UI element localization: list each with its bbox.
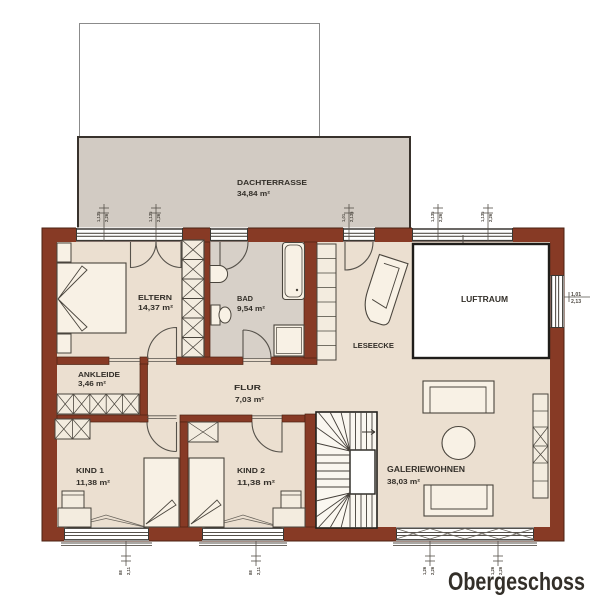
svg-text:BAD: BAD (237, 294, 254, 303)
svg-text:1,135: 1,135 (430, 211, 435, 222)
svg-text:2,11: 2,11 (126, 566, 131, 575)
svg-text:9,54 m²: 9,54 m² (237, 304, 266, 313)
svg-text:2,135: 2,135 (349, 211, 354, 222)
svg-text:2,26: 2,26 (438, 213, 443, 222)
svg-text:3,46 m²: 3,46 m² (78, 379, 107, 388)
svg-text:2,26: 2,26 (488, 213, 493, 222)
svg-text:14,37 m²: 14,37 m² (138, 303, 174, 312)
svg-text:38,03 m²: 38,03 m² (387, 477, 421, 486)
svg-text:1,135: 1,135 (148, 211, 153, 222)
svg-text:LESEECKE: LESEECKE (353, 341, 394, 350)
svg-text:88: 88 (118, 570, 123, 575)
svg-text:Obergeschoss: Obergeschoss (448, 568, 585, 596)
svg-text:1,135: 1,135 (96, 211, 101, 222)
svg-text:34,84 m²: 34,84 m² (237, 189, 271, 198)
svg-text:LUFTRAUM: LUFTRAUM (461, 295, 508, 304)
svg-text:1,01: 1,01 (341, 213, 346, 222)
svg-text:2,11: 2,11 (256, 566, 261, 575)
svg-text:2,13: 2,13 (571, 299, 581, 305)
svg-text:1,01: 1,01 (571, 292, 581, 298)
svg-text:2,26: 2,26 (156, 213, 161, 222)
svg-text:88: 88 (248, 570, 253, 575)
svg-text:FLUR: FLUR (234, 383, 262, 392)
svg-text:1,135: 1,135 (480, 211, 485, 222)
svg-text:11,38 m²: 11,38 m² (76, 478, 111, 487)
svg-text:2,26: 2,26 (104, 213, 109, 222)
svg-text:ELTERN: ELTERN (138, 293, 172, 302)
svg-text:KIND 2: KIND 2 (237, 466, 265, 475)
svg-text:DACHTERRASSE: DACHTERRASSE (237, 178, 307, 187)
svg-text:KIND 1: KIND 1 (76, 466, 104, 475)
svg-text:7,03 m²: 7,03 m² (235, 395, 265, 404)
svg-text:1,26: 1,26 (422, 566, 427, 575)
svg-text:11,38 m²: 11,38 m² (237, 478, 276, 487)
svg-text:GALERIEWOHNEN: GALERIEWOHNEN (387, 465, 465, 474)
svg-text:ANKLEIDE: ANKLEIDE (78, 370, 120, 379)
svg-text:2,26: 2,26 (430, 566, 435, 575)
